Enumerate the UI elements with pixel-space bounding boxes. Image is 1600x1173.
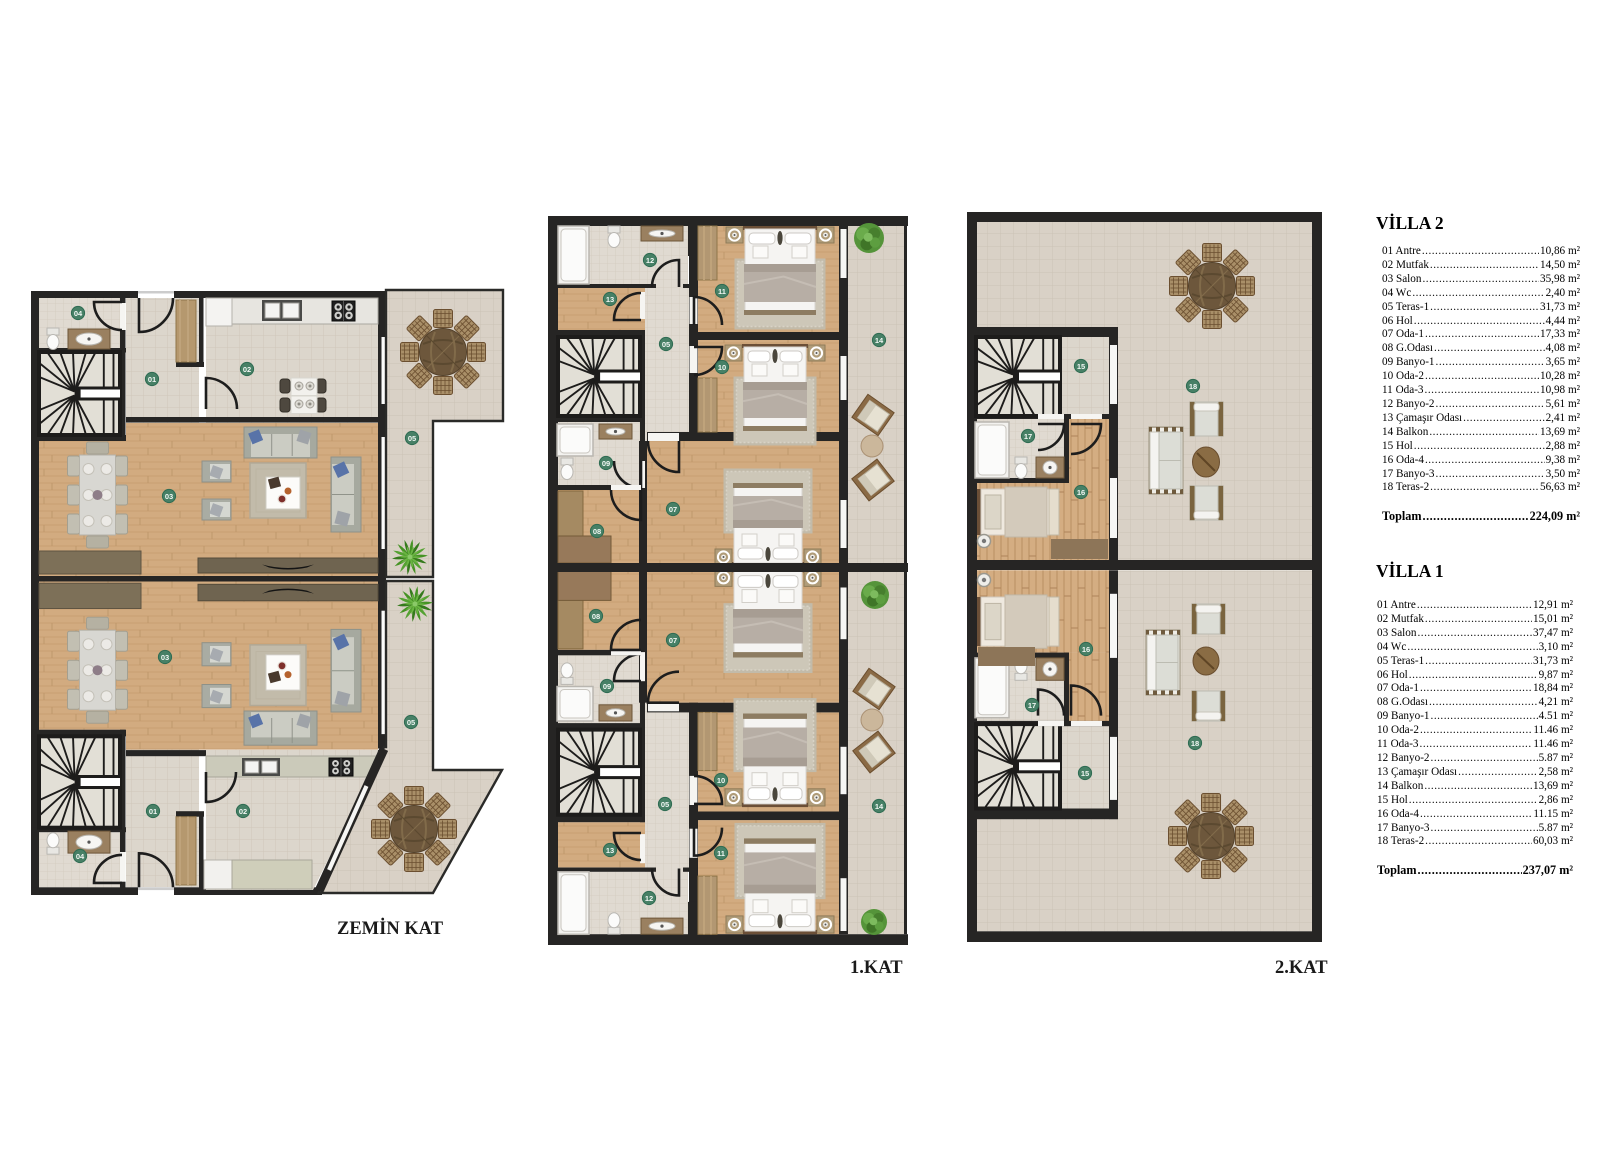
svg-text:15: 15 bbox=[1081, 769, 1089, 778]
svg-text:07: 07 bbox=[669, 636, 677, 645]
svg-text:05: 05 bbox=[408, 434, 416, 443]
svg-text:01: 01 bbox=[149, 807, 157, 816]
svg-text:17: 17 bbox=[1024, 432, 1032, 441]
svg-text:07: 07 bbox=[669, 505, 677, 514]
svg-text:13: 13 bbox=[606, 846, 614, 855]
svg-text:16: 16 bbox=[1077, 488, 1085, 497]
svg-text:04: 04 bbox=[74, 309, 83, 318]
svg-text:14: 14 bbox=[875, 336, 884, 345]
svg-text:08: 08 bbox=[592, 612, 600, 621]
svg-text:12: 12 bbox=[645, 894, 653, 903]
svg-text:14: 14 bbox=[875, 802, 884, 811]
svg-text:05: 05 bbox=[661, 800, 669, 809]
svg-text:18: 18 bbox=[1189, 382, 1197, 391]
svg-text:13: 13 bbox=[606, 295, 614, 304]
svg-text:05: 05 bbox=[407, 718, 415, 727]
svg-text:11: 11 bbox=[718, 287, 726, 296]
svg-text:10: 10 bbox=[717, 776, 725, 785]
svg-text:02: 02 bbox=[243, 365, 251, 374]
svg-text:08: 08 bbox=[593, 527, 601, 536]
svg-text:05: 05 bbox=[662, 340, 670, 349]
svg-text:10: 10 bbox=[718, 363, 726, 372]
svg-text:18: 18 bbox=[1191, 739, 1199, 748]
svg-text:12: 12 bbox=[646, 256, 654, 265]
svg-text:17: 17 bbox=[1028, 701, 1036, 710]
svg-text:15: 15 bbox=[1077, 362, 1085, 371]
svg-text:04: 04 bbox=[76, 852, 85, 861]
svg-text:02: 02 bbox=[239, 807, 247, 816]
svg-text:09: 09 bbox=[603, 682, 611, 691]
svg-text:03: 03 bbox=[165, 492, 173, 501]
svg-text:01: 01 bbox=[148, 375, 156, 384]
svg-text:11: 11 bbox=[717, 849, 725, 858]
svg-text:09: 09 bbox=[602, 459, 610, 468]
svg-text:03: 03 bbox=[161, 653, 169, 662]
svg-text:16: 16 bbox=[1082, 645, 1090, 654]
